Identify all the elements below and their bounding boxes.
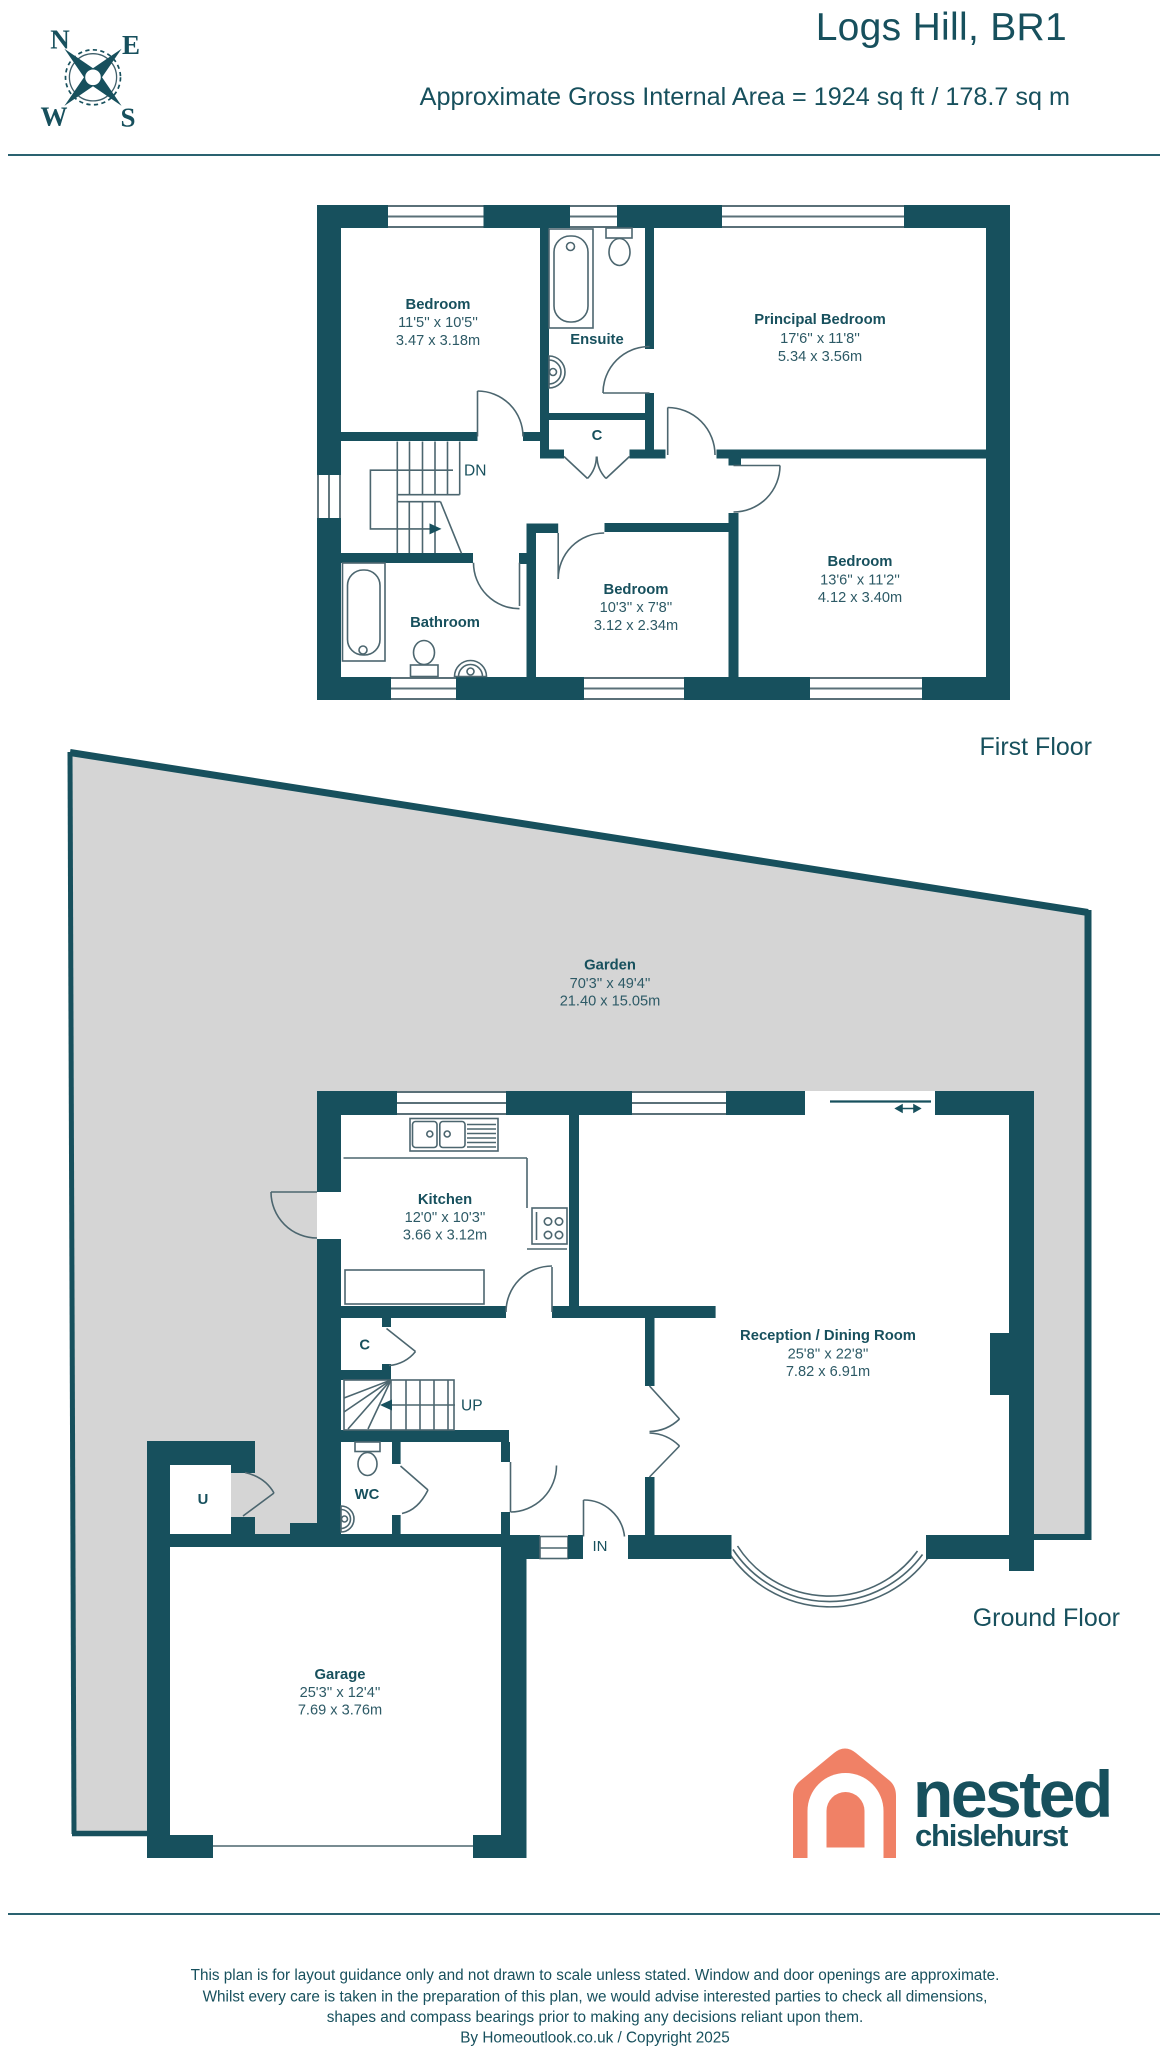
svg-text:12'0'' x 10'3'': 12'0'' x 10'3'' [405, 1210, 486, 1226]
svg-text:shapes and compass bearings pr: shapes and compass bearings prior to mak… [327, 2009, 864, 2026]
svg-text:DN: DN [464, 463, 486, 480]
svg-text:By Homeoutlook.co.uk / Copyrig: By Homeoutlook.co.uk / Copyright 2025 [460, 2030, 730, 2047]
svg-text:10'3'' x 7'8'': 10'3'' x 7'8'' [600, 600, 673, 616]
svg-text:E: E [122, 30, 140, 60]
svg-text:N: N [50, 25, 70, 55]
svg-text:Bathroom: Bathroom [410, 615, 480, 631]
svg-text:3.66 x 3.12m: 3.66 x 3.12m [403, 1228, 487, 1244]
svg-text:C: C [592, 428, 603, 444]
svg-text:Principal Bedroom: Principal Bedroom [754, 312, 886, 328]
svg-text:3.12 x 2.34m: 3.12 x 2.34m [594, 618, 678, 634]
svg-text:3.47 x 3.18m: 3.47 x 3.18m [396, 333, 480, 349]
svg-text:Bedroom: Bedroom [406, 297, 471, 313]
svg-text:7.69 x 3.76m: 7.69 x 3.76m [298, 1703, 382, 1719]
svg-text:11'5'' x 10'5'': 11'5'' x 10'5'' [398, 315, 478, 331]
svg-text:21.40 x 15.05m: 21.40 x 15.05m [560, 994, 661, 1010]
svg-text:chislehurst: chislehurst [915, 1818, 1068, 1853]
svg-text:70'3'' x 49'4'': 70'3'' x 49'4'' [570, 976, 651, 992]
svg-text:Approximate Gross Internal Are: Approximate Gross Internal Area = 1924 s… [420, 83, 1070, 111]
svg-text:UP: UP [461, 1398, 483, 1415]
svg-text:IN: IN [593, 1538, 608, 1555]
svg-text:Garden: Garden [584, 958, 636, 974]
svg-text:First Floor: First Floor [980, 733, 1093, 761]
svg-text:17'6'' x 11'8'': 17'6'' x 11'8'' [780, 331, 860, 347]
svg-text:U: U [198, 1492, 209, 1508]
svg-text:Kitchen: Kitchen [418, 1192, 472, 1208]
svg-text:25'3'' x 12'4'': 25'3'' x 12'4'' [300, 1685, 381, 1701]
svg-text:Reception / Dining Room: Reception / Dining Room [740, 1328, 916, 1344]
svg-text:S: S [120, 103, 135, 133]
svg-text:7.82 x 6.91m: 7.82 x 6.91m [786, 1364, 870, 1380]
svg-text:13'6'' x 11'2'': 13'6'' x 11'2'' [820, 573, 900, 589]
svg-text:Bedroom: Bedroom [604, 582, 669, 598]
svg-text:25'8'' x 22'8'': 25'8'' x 22'8'' [788, 1347, 869, 1363]
svg-text:5.34 x 3.56m: 5.34 x 3.56m [778, 349, 862, 365]
svg-text:Ensuite: Ensuite [570, 332, 623, 348]
svg-text:4.12 x 3.40m: 4.12 x 3.40m [818, 590, 902, 606]
svg-text:C: C [359, 1338, 370, 1354]
svg-text:This plan is for layout guidan: This plan is for layout guidance only an… [191, 1967, 1000, 1984]
svg-text:Logs Hill, BR1: Logs Hill, BR1 [816, 6, 1067, 49]
svg-text:W: W [41, 102, 68, 132]
svg-text:WC: WC [355, 1487, 380, 1503]
svg-text:Garage: Garage [315, 1667, 366, 1683]
svg-text:Bedroom: Bedroom [828, 554, 893, 570]
svg-text:Whilst every care is taken in: Whilst every care is taken in the prepar… [203, 1989, 988, 2006]
svg-text:Ground Floor: Ground Floor [973, 1604, 1120, 1632]
